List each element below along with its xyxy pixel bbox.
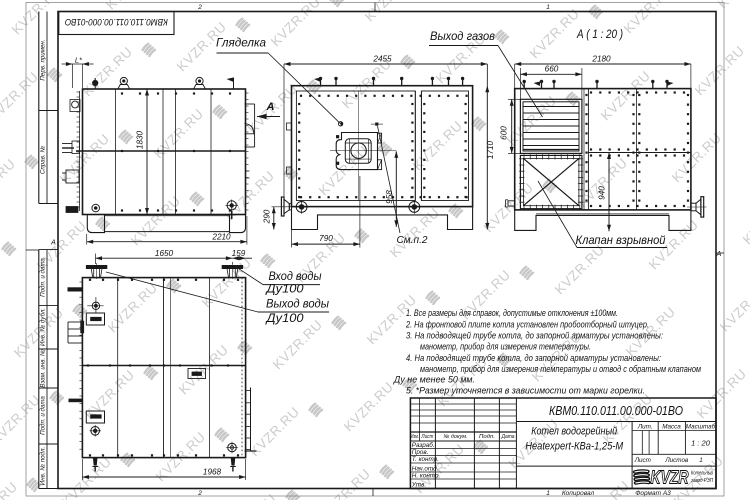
svg-text:KVZR.RU: KVZR.RU xyxy=(9,0,64,37)
svg-text:Утв.: Утв. xyxy=(411,482,426,489)
svg-text:Изм.: Изм. xyxy=(411,434,419,440)
svg-text:KVZR.RU: KVZR.RU xyxy=(717,279,750,334)
svg-text:завод РЭП: завод РЭП xyxy=(690,478,713,484)
svg-text:2180: 2180 xyxy=(591,55,611,64)
svg-text:манометр, прибор для измерения: манометр, прибор для измерения температу… xyxy=(420,364,701,374)
svg-text:KVZR.RU: KVZR.RU xyxy=(481,180,536,235)
svg-text:KVZR.RU: KVZR.RU xyxy=(598,68,653,123)
svg-text:159: 159 xyxy=(232,249,246,258)
svg-text:№ докум.: № докум. xyxy=(444,434,468,440)
svg-text:См.п.2: См.п.2 xyxy=(397,234,428,246)
svg-text:L*: L* xyxy=(75,56,83,65)
svg-text:Подп. и дата: Подп. и дата xyxy=(40,396,47,435)
svg-text:Лист: Лист xyxy=(421,434,434,440)
svg-text:1: 1 xyxy=(546,490,550,497)
svg-text:Лит.: Лит. xyxy=(637,423,653,430)
svg-text:Вход воды: Вход воды xyxy=(269,271,323,283)
svg-text:KVZR.RU: KVZR.RU xyxy=(715,0,750,11)
svg-text:КВМ0.110.011.00.000-01ВО: КВМ0.110.011.00.000-01ВО xyxy=(549,404,683,418)
svg-text:KVZR.RU: KVZR.RU xyxy=(128,193,183,248)
svg-text:1: 1 xyxy=(546,4,550,11)
svg-text:Котел водогрейный: Котел водогрейный xyxy=(531,425,617,437)
svg-text:КВМ0.110.011.00.000-01ВО: КВМ0.110.011.00.000-01ВО xyxy=(65,17,168,27)
svg-text:Пров.: Пров. xyxy=(412,449,429,456)
svg-text:Справ. №: Справ. № xyxy=(40,146,47,174)
svg-text:KVZR.RU: KVZR.RU xyxy=(224,491,279,500)
svg-text:Нач.отд.: Нач.отд. xyxy=(412,464,439,472)
svg-text:KVZR.RU: KVZR.RU xyxy=(527,6,582,61)
svg-text:600: 600 xyxy=(500,126,509,140)
svg-text:KVZR.RU: KVZR.RU xyxy=(80,44,135,99)
svg-text:1710: 1710 xyxy=(486,140,495,159)
svg-text:2: 2 xyxy=(197,490,202,497)
svg-text:Подп. и дата: Подп. и дата xyxy=(40,258,47,297)
svg-text:Дата: Дата xyxy=(501,434,515,440)
svg-text:KVZR.RU: KVZR.RU xyxy=(0,479,20,500)
svg-text:1650: 1650 xyxy=(155,249,174,258)
svg-text:1. Все размеры для справок, до: 1. Все размеры для справок, допустимые о… xyxy=(406,308,618,318)
svg-text:2210: 2210 xyxy=(211,232,231,241)
svg-text:1 : 20: 1 : 20 xyxy=(691,438,711,447)
svg-text:KVZR.RU: KVZR.RU xyxy=(410,118,465,173)
svg-text:Н. контр.: Н. контр. xyxy=(412,473,440,480)
svg-text:KVZR.RU: KVZR.RU xyxy=(153,429,208,484)
svg-text:5. *Размер уточняется в зависи: 5. *Размер уточняется в зависимости от м… xyxy=(406,385,645,395)
svg-text:KVZR: KVZR xyxy=(651,468,689,488)
svg-text:KVZR.RU: KVZR.RU xyxy=(552,242,607,297)
svg-text:290: 290 xyxy=(263,209,272,224)
svg-text:Ду100: Ду100 xyxy=(264,313,304,325)
svg-text:KVZR.RU: KVZR.RU xyxy=(151,106,206,161)
svg-text:KVZR.RU: KVZR.RU xyxy=(316,143,371,198)
svg-text:1968: 1968 xyxy=(203,468,222,477)
svg-text:KVZR.RU: KVZR.RU xyxy=(621,0,676,36)
svg-text:А: А xyxy=(716,251,722,258)
svg-text:Выход газов: Выход газов xyxy=(430,29,495,43)
svg-text:Взам. инв. №: Взам. инв. № xyxy=(40,349,47,388)
svg-text:KVZR.RU: KVZR.RU xyxy=(318,466,373,500)
svg-text:940: 940 xyxy=(598,186,607,200)
svg-text:3. На подводящей трубе котла,: 3. На подводящей трубе котла, до запорно… xyxy=(406,331,663,341)
svg-text:Лист: Лист xyxy=(634,457,651,464)
svg-text:Копировал: Копировал xyxy=(562,490,595,497)
svg-text:2455: 2455 xyxy=(372,55,392,64)
svg-text:Ду100: Ду100 xyxy=(264,284,304,296)
svg-text:KVZR.RU: KVZR.RU xyxy=(0,156,18,211)
svg-text:KVZR.RU: KVZR.RU xyxy=(692,43,747,98)
svg-text:1830: 1830 xyxy=(136,130,145,149)
svg-text:Инв. № подл.: Инв. № подл. xyxy=(40,447,47,485)
svg-text:790: 790 xyxy=(319,234,333,243)
svg-text:KVZR.RU: KVZR.RU xyxy=(341,379,396,434)
svg-text:2: 2 xyxy=(197,4,202,11)
svg-text:Формат А3: Формат А3 xyxy=(635,490,671,497)
svg-text:KVZR.RU: KVZR.RU xyxy=(740,192,750,247)
svg-text:KVZR.RU: KVZR.RU xyxy=(270,317,325,372)
svg-text:манометр, прибор для измерения: манометр, прибор для измерения температу… xyxy=(420,342,591,352)
svg-text:KVZR.RU: KVZR.RU xyxy=(600,391,655,446)
svg-text:660: 660 xyxy=(545,65,559,74)
svg-text:KVZR.RU: KVZR.RU xyxy=(103,0,158,12)
svg-text:1: 1 xyxy=(699,457,703,464)
svg-text:А ( 1 : 20 ): А ( 1 : 20 ) xyxy=(576,29,623,41)
svg-text:Клапан взрывной: Клапан взрывной xyxy=(576,233,666,247)
svg-text:KVZR.RU: KVZR.RU xyxy=(57,131,112,186)
svg-text:Листов: Листов xyxy=(664,457,689,464)
svg-text:Подп.: Подп. xyxy=(479,434,495,440)
svg-text:Ду не менее 50 мм.: Ду не менее 50 мм. xyxy=(393,375,475,385)
svg-text:KVZR.RU: KVZR.RU xyxy=(268,0,323,49)
svg-text:Масштаб: Масштаб xyxy=(686,422,716,430)
svg-text:KVZR.RU: KVZR.RU xyxy=(0,392,43,447)
svg-text:А: А xyxy=(50,240,56,247)
svg-text:Котельный: Котельный xyxy=(691,470,713,477)
svg-text:2. На фронтовой плите котла ус: 2. На фронтовой плите котла установлен п… xyxy=(405,319,649,329)
svg-text:Разраб.: Разраб. xyxy=(412,441,435,449)
svg-text:Выход воды: Выход воды xyxy=(266,299,330,311)
svg-text:KVZR.RU: KVZR.RU xyxy=(575,155,630,210)
svg-text:А: А xyxy=(266,101,275,113)
svg-text:KVZR.RU: KVZR.RU xyxy=(82,367,137,422)
svg-text:Т. контр.: Т. контр. xyxy=(412,456,439,463)
svg-text:KVZR.RU: KVZR.RU xyxy=(694,366,749,421)
svg-text:Масса: Масса xyxy=(662,423,681,430)
svg-text:4. На подводящей трубе котла,: 4. На подводящей трубе котла, до запорно… xyxy=(406,353,661,363)
svg-text:Гляделка: Гляделка xyxy=(216,38,266,50)
svg-text:KVZR.RU: KVZR.RU xyxy=(0,69,41,124)
svg-text:Инв. № дубл.: Инв. № дубл. xyxy=(40,308,47,346)
svg-text:KVZR.RU: KVZR.RU xyxy=(176,342,231,397)
svg-text:Перв. примен.: Перв. примен. xyxy=(40,39,47,80)
svg-text:KVZR.RU: KVZR.RU xyxy=(105,280,160,335)
svg-text:Heatexpert-КВа-1,25-М: Heatexpert-КВа-1,25-М xyxy=(525,440,624,452)
